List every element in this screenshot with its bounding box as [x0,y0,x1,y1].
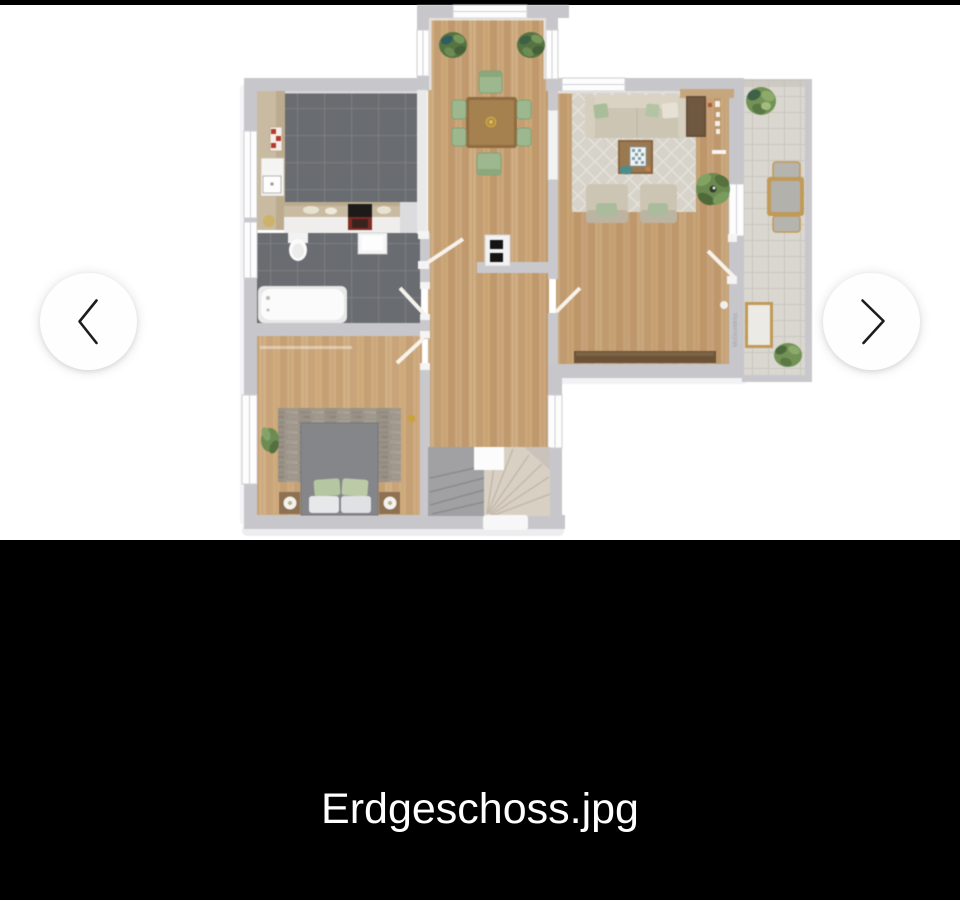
svg-text:McGrundriss: McGrundriss [733,313,739,347]
